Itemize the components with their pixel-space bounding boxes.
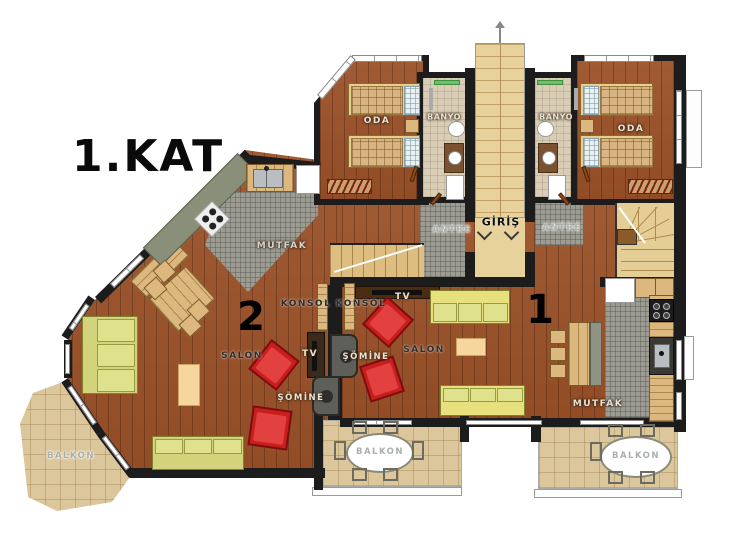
balcony-center-railing xyxy=(312,487,462,496)
kitchen-island-top xyxy=(590,322,602,386)
stair-arrow-line xyxy=(499,27,501,43)
sofa-cushion xyxy=(458,303,482,322)
room-label-kitchen-right: MUTFAK xyxy=(573,399,623,409)
balcony-chair xyxy=(608,424,623,437)
bed-pillow xyxy=(583,138,599,167)
wall xyxy=(525,252,535,277)
bar-stool xyxy=(550,347,566,361)
sofa-cushion xyxy=(483,303,508,322)
toilet xyxy=(448,121,465,137)
wall xyxy=(525,68,535,222)
bed-mattress xyxy=(351,138,403,167)
window-sill xyxy=(684,336,694,380)
balcony-chair xyxy=(352,421,367,434)
bed-mattress xyxy=(600,138,653,167)
bed-pillow xyxy=(583,86,599,115)
wall xyxy=(340,418,554,427)
sofa xyxy=(440,385,525,416)
bathroom-mirror xyxy=(574,88,578,110)
nightstand xyxy=(405,119,419,133)
room-label-balcony-left: BALKON xyxy=(47,451,95,461)
bed xyxy=(580,135,653,168)
room-label-living-left: SALON xyxy=(221,351,263,361)
bed xyxy=(348,83,420,116)
bed-mattress xyxy=(600,86,653,115)
balcony-chair xyxy=(640,424,655,437)
balcony-chair xyxy=(640,471,655,484)
sink xyxy=(253,169,283,188)
nightstand xyxy=(580,119,594,133)
room-label-fireplace-right: ŞÖMİNE xyxy=(343,352,390,362)
window xyxy=(584,55,654,62)
room-label-tv-left: TV xyxy=(302,349,318,359)
floor-title: 1.KAT xyxy=(72,131,224,182)
room-label-bathroom-right: BANYO xyxy=(539,113,573,122)
refrigerator xyxy=(605,278,635,303)
burner xyxy=(201,214,211,224)
bar-stool xyxy=(550,364,566,378)
faucet xyxy=(264,166,269,171)
stair-arrow-head-icon xyxy=(495,21,505,28)
bathroom-mirror xyxy=(429,88,433,110)
sofa-cushion xyxy=(433,303,457,322)
room-label-bedroom-left: ODA xyxy=(364,116,391,126)
wall xyxy=(465,68,475,222)
bed-pillow xyxy=(404,138,420,167)
sink xyxy=(448,151,462,165)
sink xyxy=(654,344,670,368)
central-staircase xyxy=(475,43,525,218)
floor-plan: 1.KAT xyxy=(0,0,751,533)
sofa-cushion xyxy=(97,319,135,342)
sofa xyxy=(82,316,138,394)
sofa xyxy=(430,290,510,324)
unit-number-left: 2 xyxy=(237,294,265,340)
room-label-entrance: GİRİŞ xyxy=(482,216,521,229)
sofa-cushion xyxy=(213,439,242,454)
bed xyxy=(580,83,653,116)
bathroom-vanity xyxy=(538,143,558,173)
room-label-balcony-right: BALKON xyxy=(612,451,660,461)
sofa-cushion xyxy=(497,388,523,402)
sofa-cushion xyxy=(443,388,469,402)
stair-tread-line xyxy=(621,270,675,271)
room-label-console-left: KONSOL xyxy=(281,299,332,309)
shower xyxy=(446,175,464,200)
burner xyxy=(208,207,218,217)
bathroom-shelf xyxy=(434,80,460,85)
hallway-left-floor xyxy=(420,200,465,277)
stair-tread-line xyxy=(621,249,675,250)
toilet xyxy=(537,121,554,137)
sofa-cushion xyxy=(155,439,183,454)
stove xyxy=(649,299,674,322)
bed-mattress xyxy=(351,86,403,115)
sofa-cushion xyxy=(184,439,212,454)
balcony-right-railing xyxy=(534,489,682,498)
window xyxy=(65,344,70,374)
window xyxy=(676,392,682,420)
sofa-cushion xyxy=(97,369,135,392)
kitchen-sink-counter xyxy=(246,164,294,192)
bed xyxy=(348,135,420,168)
refrigerator xyxy=(296,165,320,194)
room-label-balcony-center: BALKON xyxy=(356,447,404,457)
bathroom-vanity xyxy=(444,143,464,173)
room-label-kitchen-left: MUTFAK xyxy=(257,241,307,251)
unit-number-right: 1 xyxy=(526,287,554,333)
balcony-chair xyxy=(608,471,623,484)
stair-tread-line xyxy=(621,261,675,262)
window-sill xyxy=(686,90,702,168)
apartment1-staircase xyxy=(615,203,675,277)
stair-center-line xyxy=(500,44,501,219)
burner xyxy=(215,214,225,224)
radiator xyxy=(628,179,673,194)
window xyxy=(352,55,422,62)
sink xyxy=(542,151,556,165)
room-label-bedroom-right: ODA xyxy=(618,124,645,134)
sofa xyxy=(152,436,244,470)
window xyxy=(676,340,682,380)
sofa-cushion xyxy=(97,344,135,367)
room-label-hallway-left: ANTRE xyxy=(432,225,471,235)
armchair xyxy=(247,405,292,450)
bed-pillow xyxy=(404,86,420,115)
wall-bay xyxy=(64,340,72,378)
room-label-console-right: KONSOL xyxy=(336,299,387,309)
balcony-door xyxy=(466,420,542,425)
balcony-chair xyxy=(412,441,424,460)
room-label-hallway-right: ANTRE xyxy=(542,223,581,233)
room-label-bathroom-left: BANYO xyxy=(427,113,461,122)
window xyxy=(676,90,682,164)
radiator xyxy=(327,179,372,194)
balcony-chair xyxy=(383,468,398,481)
stair-tread-line xyxy=(655,207,656,241)
burner xyxy=(208,221,218,231)
sink-divider xyxy=(266,169,267,187)
burner xyxy=(653,312,660,319)
coffee-table xyxy=(178,364,200,406)
kitchen-sink-unit xyxy=(649,337,674,375)
sofa-cushion xyxy=(470,388,496,402)
room-label-tv-right: TV xyxy=(395,292,411,302)
balcony-chair xyxy=(383,421,398,434)
kitchen-island xyxy=(568,322,590,386)
wall xyxy=(465,252,475,277)
balcony-chair xyxy=(334,441,346,460)
wall xyxy=(314,413,323,490)
coffee-table xyxy=(456,338,486,356)
room-label-fireplace-left: ŞÖMİNE xyxy=(278,393,325,403)
burner xyxy=(653,303,660,310)
room-label-living-right: SALON xyxy=(403,345,445,355)
burner xyxy=(663,303,670,310)
balcony-chair xyxy=(352,468,367,481)
bathroom-shelf xyxy=(537,80,563,85)
stair-landing xyxy=(617,229,637,245)
burner xyxy=(663,312,670,319)
balcony-chair xyxy=(590,442,602,461)
faucet xyxy=(659,351,664,356)
